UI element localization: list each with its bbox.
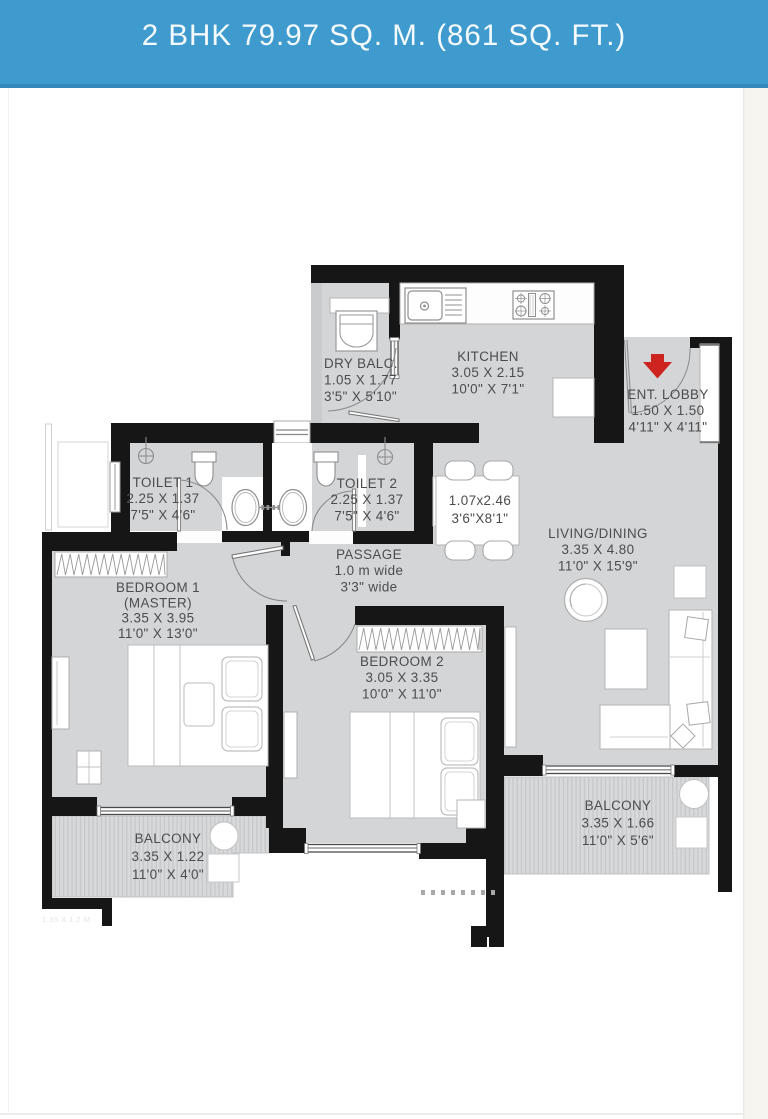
svg-text:3.35 X 3.95: 3.35 X 3.95 bbox=[122, 611, 195, 626]
svg-text:BALCONY: BALCONY bbox=[135, 831, 202, 846]
svg-text:3.05 X 3.35: 3.05 X 3.35 bbox=[366, 670, 439, 685]
svg-text:11'0" X 4'0": 11'0" X 4'0" bbox=[132, 867, 204, 882]
svg-text:BEDROOM 2: BEDROOM 2 bbox=[360, 654, 444, 669]
svg-text:10'0" X 11'0": 10'0" X 11'0" bbox=[362, 686, 442, 701]
svg-text:LIVING/DINING: LIVING/DINING bbox=[548, 526, 648, 541]
svg-text:10'0" X 7'1": 10'0" X 7'1" bbox=[451, 381, 524, 396]
svg-text:11'0" X 5'6": 11'0" X 5'6" bbox=[582, 833, 654, 848]
svg-text:TOILET 2: TOILET 2 bbox=[337, 476, 398, 491]
svg-text:3'6"X8'1": 3'6"X8'1" bbox=[452, 511, 509, 526]
svg-text:3.35 X 4.80: 3.35 X 4.80 bbox=[562, 542, 635, 557]
svg-text:ENT. LOBBY: ENT. LOBBY bbox=[627, 387, 708, 402]
svg-text:3.35 X 1.22: 3.35 X 1.22 bbox=[132, 849, 205, 864]
svg-text:7'5" X 4'6": 7'5" X 4'6" bbox=[334, 508, 399, 523]
svg-text:3'5" X 5'10": 3'5" X 5'10" bbox=[324, 389, 397, 404]
svg-text:2.25 X 1.37: 2.25 X 1.37 bbox=[127, 491, 200, 506]
svg-text:1.07x2.46: 1.07x2.46 bbox=[449, 493, 511, 508]
svg-text:4'11" X 4'11": 4'11" X 4'11" bbox=[629, 419, 708, 434]
svg-text:3.05 X 2.15: 3.05 X 2.15 bbox=[452, 365, 525, 380]
svg-text:1.0 m wide: 1.0 m wide bbox=[335, 563, 404, 578]
svg-text:1.50 X 1.50: 1.50 X 1.50 bbox=[632, 403, 705, 418]
svg-text:1.35 X 1.2 M: 1.35 X 1.2 M bbox=[42, 915, 91, 924]
svg-text:2.25 X 1.37: 2.25 X 1.37 bbox=[331, 492, 404, 507]
svg-text:11'0" X 15'9": 11'0" X 15'9" bbox=[558, 558, 638, 573]
svg-text:11'0" X 13'0": 11'0" X 13'0" bbox=[118, 626, 198, 641]
svg-text:7'5" X 4'6": 7'5" X 4'6" bbox=[130, 507, 195, 522]
svg-text:BEDROOM 1: BEDROOM 1 bbox=[116, 580, 200, 595]
svg-text:DRY BALC.: DRY BALC. bbox=[324, 356, 398, 371]
svg-text:BALCONY: BALCONY bbox=[585, 798, 652, 813]
svg-text:1.05 X 1.77: 1.05 X 1.77 bbox=[324, 373, 397, 388]
svg-text:2 BHK 79.97 SQ. M. (861 SQ. FT: 2 BHK 79.97 SQ. M. (861 SQ. FT.) bbox=[142, 19, 627, 52]
svg-text:(MASTER): (MASTER) bbox=[124, 595, 192, 610]
svg-text:3'3" wide: 3'3" wide bbox=[340, 579, 397, 594]
svg-text:TOILET 1: TOILET 1 bbox=[133, 475, 194, 490]
svg-text:PASSAGE: PASSAGE bbox=[336, 547, 402, 562]
svg-text:3.35 X 1.66: 3.35 X 1.66 bbox=[582, 816, 655, 831]
svg-text:KITCHEN: KITCHEN bbox=[457, 349, 519, 364]
